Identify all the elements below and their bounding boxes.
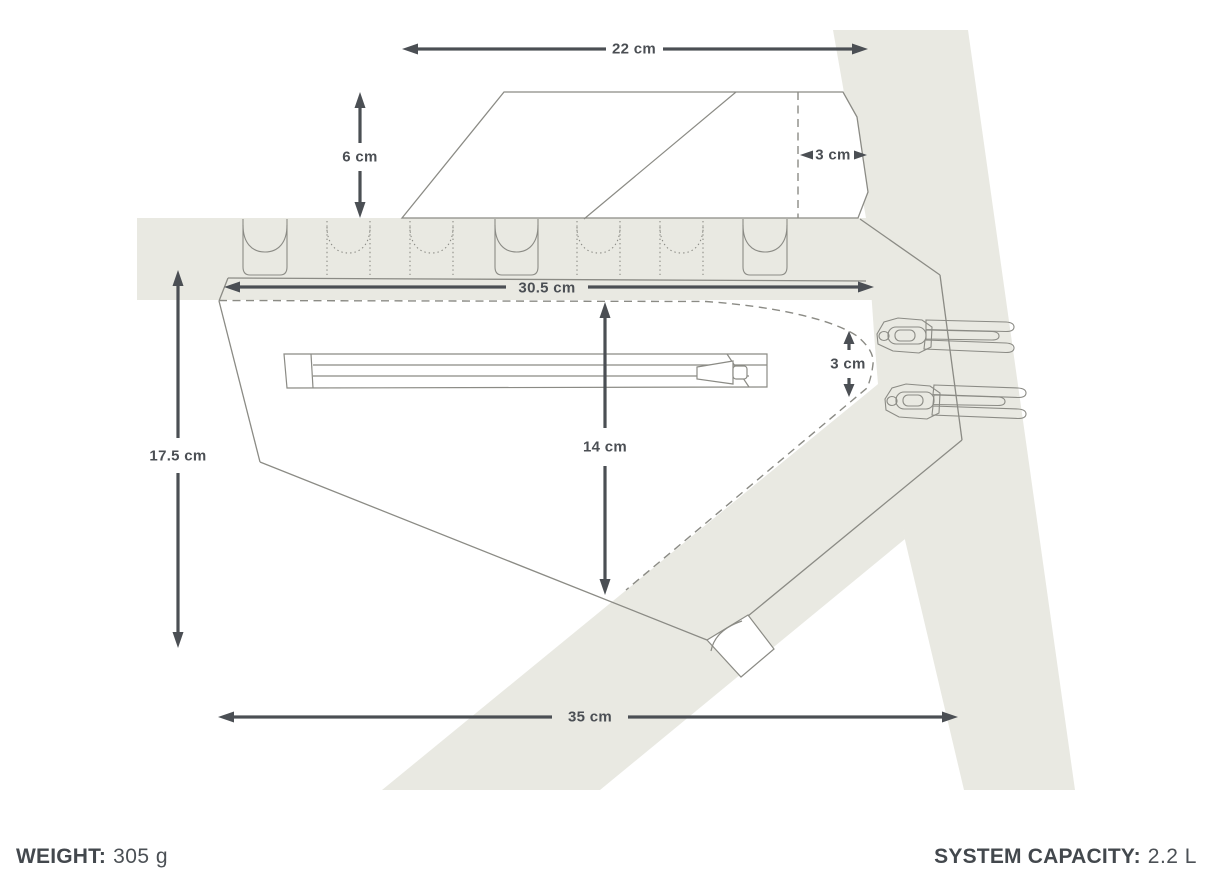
- dim-line: [663, 47, 853, 50]
- dim-line: [603, 466, 606, 579]
- dim-line: [232, 715, 552, 718]
- dim-top-width: 22 cm: [402, 41, 868, 58]
- dim-label: 30.5 cm: [518, 280, 575, 297]
- arrowhead-down-icon: [355, 202, 366, 218]
- diagram-canvas: 22 cm 6 cm 3 cm 30.5 cm 3 cm: [0, 0, 1215, 889]
- dim-line: [358, 106, 361, 143]
- capacity-value: 2.2 L: [1148, 845, 1197, 868]
- dim-label: 22 cm: [612, 41, 656, 58]
- dim-line: [588, 285, 858, 288]
- dim-label: 3 cm: [815, 147, 850, 164]
- dim-label: 14 cm: [583, 439, 627, 456]
- dim-bottom-length: 35 cm: [218, 709, 958, 726]
- buckle-strap-middle: [926, 330, 999, 340]
- dim-line: [176, 284, 179, 438]
- dim-top-height: 6 cm: [342, 92, 377, 218]
- zipper-band: [284, 354, 767, 388]
- dim-label: 17.5 cm: [149, 448, 206, 465]
- dim-line: [238, 285, 506, 288]
- zipper: [284, 354, 767, 388]
- cam-buckle-lower: [885, 384, 1026, 419]
- dim-line: [628, 715, 942, 718]
- dim-front-height: 17.5 cm: [149, 270, 206, 648]
- arrowhead-left-icon: [402, 44, 418, 55]
- zipper-pull-tab: [733, 366, 747, 379]
- dim-label: 6 cm: [342, 149, 377, 166]
- dim-label: 3 cm: [830, 356, 865, 373]
- buckle-nose: [887, 397, 897, 406]
- buckle-strap-middle: [933, 395, 1005, 406]
- capacity-spec: SYSTEM CAPACITY:2.2 L: [934, 845, 1197, 869]
- buckle-cam-inner: [895, 330, 915, 341]
- cam-buckle-upper: [877, 318, 1014, 353]
- dim-line: [176, 473, 179, 632]
- arrowhead-down-icon: [173, 632, 184, 648]
- capacity-label: SYSTEM CAPACITY:: [934, 845, 1141, 868]
- dim-line: [603, 316, 606, 428]
- weight-value: 305 g: [113, 845, 168, 868]
- dim-line: [847, 342, 850, 350]
- dim-line: [416, 47, 606, 50]
- weight-spec: WEIGHT:305 g: [16, 845, 168, 869]
- weight-label: WEIGHT:: [16, 845, 106, 868]
- frame-pack-top-view: [402, 92, 868, 219]
- buckle-cam-inner: [903, 395, 923, 406]
- frame-pack-dimension-diagram: 22 cm 6 cm 3 cm 30.5 cm 3 cm: [0, 0, 1215, 889]
- dim-line: [358, 171, 361, 203]
- dim-label: 35 cm: [568, 709, 612, 726]
- arrowhead-up-icon: [355, 92, 366, 108]
- arrowhead-left-icon: [218, 712, 234, 723]
- buckle-nose: [879, 332, 889, 341]
